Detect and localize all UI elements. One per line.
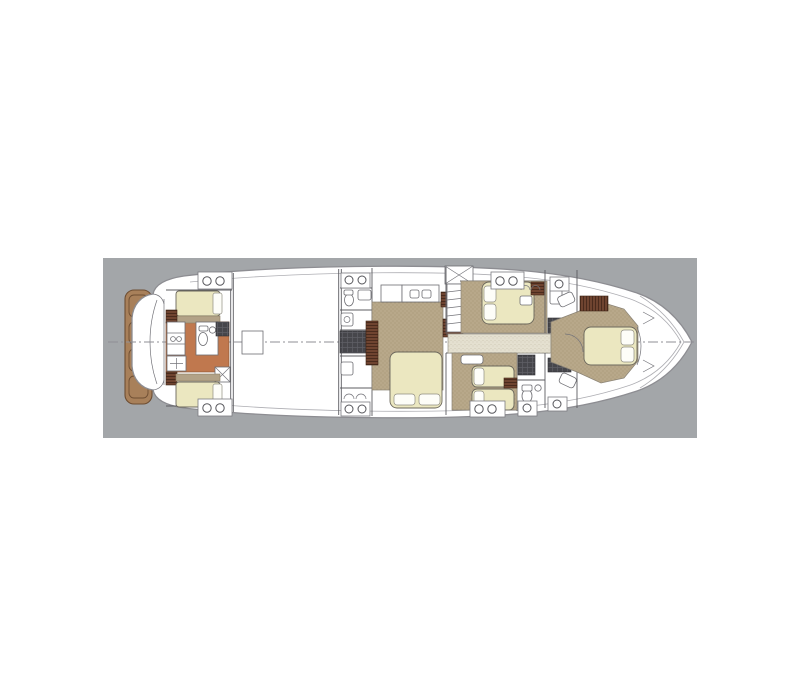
floor-plan-canvas <box>0 0 800 700</box>
vanity-stool <box>422 290 431 298</box>
toilet <box>345 294 354 306</box>
master-tv-cabinet <box>366 321 378 365</box>
vip-wardrobe <box>580 296 608 311</box>
pillow <box>213 293 222 314</box>
porthole <box>203 277 211 285</box>
master-wardrobe <box>381 285 402 302</box>
sink <box>341 313 353 326</box>
shower-tile <box>518 355 535 375</box>
porthole <box>216 277 224 285</box>
vanity-stool <box>410 290 419 298</box>
toilet-tank <box>344 290 353 295</box>
crew-locker-column <box>167 322 185 355</box>
headboard-shelf <box>176 374 220 381</box>
sink-basin <box>171 337 176 342</box>
pillow <box>484 304 496 320</box>
porthole <box>475 405 483 413</box>
porthole <box>216 404 224 412</box>
nightstand <box>504 378 517 388</box>
crew-cabin <box>166 290 232 407</box>
toilet <box>199 333 208 346</box>
sink-basin <box>209 327 215 333</box>
porthole <box>345 405 353 413</box>
pillow <box>419 394 440 405</box>
porthole <box>488 405 496 413</box>
porthole <box>509 277 517 285</box>
pillow <box>394 394 415 405</box>
sink <box>520 296 532 305</box>
crew-cabinet <box>166 372 177 385</box>
porthole <box>555 280 563 288</box>
porthole <box>523 404 531 412</box>
engine-access-hatch <box>242 331 263 354</box>
porthole <box>358 276 366 284</box>
porthole <box>496 277 504 285</box>
sink <box>358 290 371 300</box>
master-vanity <box>402 285 439 302</box>
corridor-runner <box>448 334 551 353</box>
porthole <box>553 400 561 408</box>
nightstand <box>531 282 544 295</box>
yacht-deck-plan <box>0 0 800 700</box>
pillow <box>621 347 634 362</box>
sink-basin <box>177 337 182 342</box>
toilet-tank <box>522 385 532 391</box>
crew-shower-tile <box>216 322 229 336</box>
porthole <box>358 405 366 413</box>
pillow <box>474 368 484 385</box>
pillow <box>621 330 634 345</box>
toilet <box>522 390 532 403</box>
porthole <box>203 404 211 412</box>
toilet-tank <box>199 326 208 331</box>
shower-tile <box>340 331 366 353</box>
sink <box>341 362 353 375</box>
crew-cabinet <box>166 310 177 323</box>
porthole <box>345 276 353 284</box>
bench-seat <box>461 355 483 364</box>
sink-basin <box>535 385 541 391</box>
